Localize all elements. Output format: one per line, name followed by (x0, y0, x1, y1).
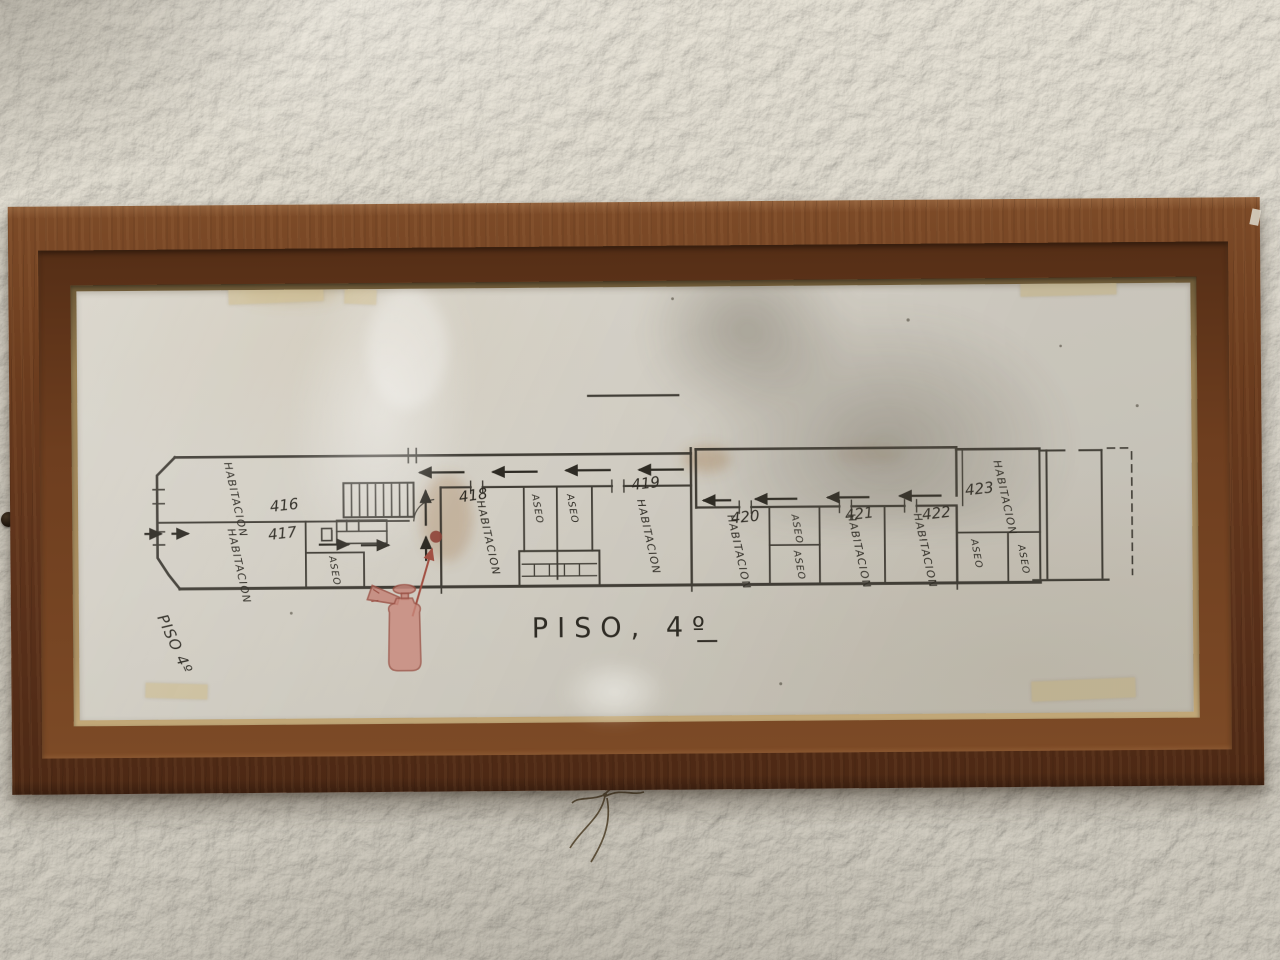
room-label: HABITACION (225, 527, 253, 605)
aseo-label: ASEO (788, 512, 804, 545)
room-label: HABITACION (911, 512, 939, 590)
aseo-label: ASEO (1015, 543, 1031, 576)
aseo-label: ASEO (968, 537, 984, 570)
plan-title: PISO, 4º (532, 612, 714, 644)
room-number-416: 416 (269, 495, 299, 516)
tape-top-mid (344, 288, 377, 304)
room-number-417: 417 (267, 523, 298, 544)
terrace (1032, 448, 1132, 580)
room-label: HABITACION (474, 499, 502, 577)
room-label: HABITACION (634, 498, 662, 576)
tape-top-right (1020, 283, 1116, 297)
extinguisher-location-dot (430, 531, 442, 543)
plan-side-label: PISO 4º (153, 611, 196, 676)
room-number-419: 419 (630, 473, 660, 494)
floor-plan-paper: PISO, 4º PISO 4º 416 417 418 419 420 421… (76, 283, 1193, 721)
room-label: HABITACION (990, 459, 1018, 537)
floor-plan-drawing: PISO, 4º PISO 4º 416 417 418 419 420 421… (76, 283, 1193, 721)
reference-line (588, 395, 678, 396)
aseo-label: ASEO (529, 492, 545, 525)
room-label: HABITACION (845, 512, 873, 590)
photo-of-framed-floor-plan: { "colors": { "wall": "#d9d5c9", "frame_… (0, 0, 1280, 960)
aseo-label: ASEO (564, 492, 580, 525)
stairs (321, 483, 414, 544)
tape-bottom-left (145, 683, 207, 700)
room-number-422: 422 (921, 503, 951, 524)
aseo-label: ASEO (791, 549, 807, 582)
room-number-423: 423 (964, 478, 994, 499)
aseo-label: ASEO (326, 554, 342, 587)
picture-frame: PISO, 4º PISO 4º 416 417 418 419 420 421… (8, 197, 1265, 795)
fire-extinguisher-icon (367, 585, 421, 671)
